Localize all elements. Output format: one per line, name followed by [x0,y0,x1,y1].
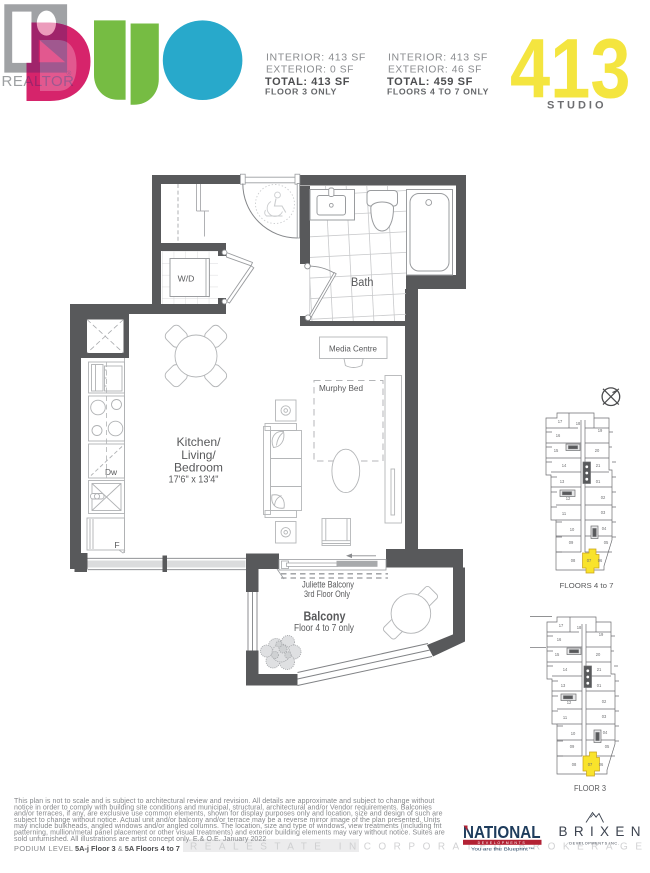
svg-text:®: ® [67,70,72,78]
svg-text:06: 06 [598,558,603,563]
svg-text:19: 19 [599,632,604,637]
svg-text:DEVELOPMENTS: DEVELOPMENTS [478,841,527,845]
svg-text:You are the Blueprint™: You are the Blueprint™ [471,847,534,852]
svg-text:sold unfurnished. All illustra: sold unfurnished. All illustrations are … [14,836,266,843]
svg-text:FLOORS 4 TO 7 ONLY: FLOORS 4 TO 7 ONLY [387,87,489,97]
svg-text:Dw: Dw [105,467,118,477]
svg-text:Juliette Balcony: Juliette Balcony [302,580,354,590]
svg-text:09: 09 [570,744,575,749]
svg-text:11: 11 [562,511,567,516]
svg-text:INTERIOR: 413 SF: INTERIOR: 413 SF [388,53,488,64]
svg-text:Murphy Bed: Murphy Bed [319,383,363,393]
svg-text:INTERIOR: 413 SF: INTERIOR: 413 SF [266,53,366,64]
svg-text:03: 03 [601,510,606,515]
svg-text:20: 20 [595,448,600,453]
svg-text:12: 12 [567,700,572,705]
svg-text:05: 05 [604,540,609,545]
svg-text:14: 14 [563,667,568,672]
svg-text:Floor 4 to 7 only: Floor 4 to 7 only [294,623,354,634]
svg-text:FLOORS 4 to 7: FLOORS 4 to 7 [560,581,614,590]
svg-text:10: 10 [570,527,575,532]
svg-text:15: 15 [555,652,560,657]
svg-text:21: 21 [597,667,602,672]
svg-text:18: 18 [577,625,582,630]
svg-text:20: 20 [596,652,601,657]
svg-text:02: 02 [602,699,607,704]
svg-text:FLOOR 3 ONLY: FLOOR 3 ONLY [265,87,337,97]
svg-text:01: 01 [597,683,602,688]
svg-text:03: 03 [602,714,607,719]
svg-text:F: F [114,540,119,550]
svg-text:09: 09 [569,540,574,545]
svg-text:14: 14 [562,463,567,468]
svg-text:08: 08 [572,762,577,767]
svg-text:FLOOR 3: FLOOR 3 [574,784,607,793]
svg-text:EXTERIOR: 0 SF: EXTERIOR: 0 SF [266,65,354,76]
svg-text:17'6" x 13'4": 17'6" x 13'4" [169,475,219,486]
svg-text:18: 18 [576,421,581,426]
svg-text:EXTERIOR: 46 SF: EXTERIOR: 46 SF [388,65,482,76]
svg-text:11: 11 [563,715,568,720]
svg-text:PODIUM LEVEL: PODIUM LEVEL [14,844,73,853]
svg-text:12: 12 [566,496,571,501]
svg-text:DEVELOPMENTS INC.: DEVELOPMENTS INC. [569,842,619,846]
svg-text:Balcony: Balcony [304,609,347,624]
svg-text:06: 06 [599,762,604,767]
svg-text:15: 15 [554,448,559,453]
svg-text:17: 17 [558,419,563,424]
svg-text:Bath: Bath [351,277,374,289]
svg-text:NATIONAL: NATIONAL [463,822,541,842]
svg-text:02: 02 [601,495,606,500]
svg-text:19: 19 [598,428,603,433]
svg-text:08: 08 [571,558,576,563]
svg-text:16: 16 [557,637,562,642]
svg-text:05: 05 [605,744,610,749]
svg-text:16: 16 [556,433,561,438]
svg-text:REALTOR: REALTOR [2,73,75,90]
svg-text:04: 04 [602,526,607,531]
svg-text:W/D: W/D [178,274,195,284]
svg-text:13: 13 [560,479,565,484]
svg-text:17: 17 [559,623,564,628]
svg-text:10: 10 [571,731,576,736]
svg-text:07: 07 [588,762,593,767]
svg-text:3rd Floor Only: 3rd Floor Only [304,589,350,599]
svg-text:Media Centre: Media Centre [329,344,377,354]
svg-text:07: 07 [587,558,592,563]
svg-text:5A-j Floor 3 & 5A Floors 4 to: 5A-j Floor 3 & 5A Floors 4 to 7 [75,844,180,853]
svg-text:21: 21 [596,463,601,468]
svg-text:13: 13 [561,683,566,688]
svg-text:BRIXEN: BRIXEN [559,824,641,839]
svg-text:04: 04 [603,730,608,735]
svg-text:01: 01 [596,479,601,484]
svg-text:Bedroom: Bedroom [174,461,223,475]
